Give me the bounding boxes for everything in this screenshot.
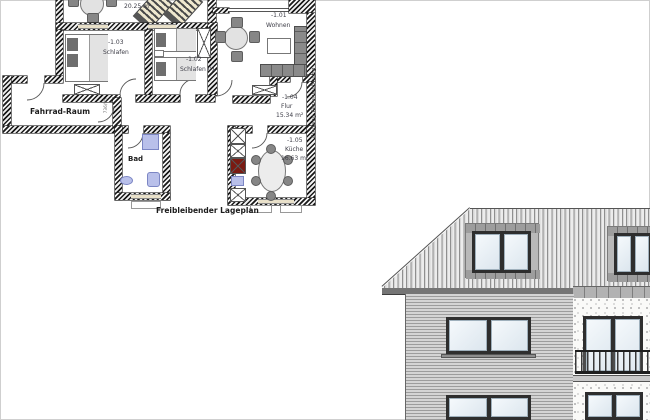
dining-chair <box>231 17 243 28</box>
wall-segment <box>3 76 11 133</box>
plan-caption: Freibleibender Lageplan <box>156 207 259 214</box>
entrance-label: Eingang Ferienwohnung <box>311 63 317 138</box>
wall-segment <box>289 0 315 13</box>
bed-pillow <box>156 62 166 76</box>
terrace-chair <box>106 0 117 7</box>
wall-segment <box>145 30 152 95</box>
terrace-chair <box>68 0 79 7</box>
wall-segment <box>144 126 170 133</box>
wall-segment <box>56 30 63 78</box>
dining-chair <box>231 51 243 62</box>
room-area-label: 16.63 m² <box>281 155 308 162</box>
bed-pillow <box>156 33 166 47</box>
wardrobe <box>74 84 100 95</box>
door-arc <box>27 83 45 101</box>
facade-window <box>446 395 531 420</box>
kitchen-chair <box>266 144 276 154</box>
wall-segment <box>196 95 215 102</box>
room-name-label: Bad <box>128 156 143 163</box>
facade-window <box>585 392 643 420</box>
screenshot-canvas: Terrasse 20.25 m² <box>0 0 650 420</box>
window-pane <box>491 320 529 351</box>
window-pane <box>635 236 649 272</box>
wall-segment <box>136 95 180 102</box>
shaft-cabinet <box>230 144 246 158</box>
floor-plan: Terrasse 20.25 m² <box>0 0 340 230</box>
balcony-railing <box>575 350 650 374</box>
room-area-label: 15.34 m² <box>276 112 303 119</box>
kitchen-chair <box>266 191 276 201</box>
window-pane <box>617 236 631 272</box>
roof-window <box>472 231 531 273</box>
wall-segment <box>233 96 270 103</box>
wall-segment <box>45 76 63 83</box>
door-arc <box>120 79 137 96</box>
shower <box>142 134 159 150</box>
door-arc <box>180 79 196 95</box>
window-sill <box>441 354 536 358</box>
dining-table <box>224 26 248 50</box>
toilet <box>147 172 160 187</box>
roof-ridge-line <box>470 208 650 209</box>
window-opening <box>78 24 108 29</box>
room-id-label: -1.01 <box>271 12 287 19</box>
roof-window <box>614 233 650 275</box>
room-name-label: Wohnen <box>266 22 290 29</box>
kitchen-chair <box>251 155 261 165</box>
wardrobe <box>197 28 211 58</box>
door-size-label: 736/95 <box>103 98 108 113</box>
floor-slab-band <box>573 375 650 382</box>
entrance-step <box>280 205 302 213</box>
kitchen-chair <box>283 176 293 186</box>
room-name-label: Flur <box>281 103 292 110</box>
bed-blanket <box>176 29 196 51</box>
window-pane <box>475 234 500 270</box>
room-name-label: Schlafen 01 <box>180 66 215 73</box>
facade-window <box>446 317 531 354</box>
door-arc <box>216 80 233 97</box>
window-opening <box>258 199 294 204</box>
room-id-label: -1.03 <box>108 39 124 46</box>
window-pane <box>449 320 487 351</box>
kitchen-chair <box>251 176 261 186</box>
room-name-label: Fahrrad-Raum <box>30 108 90 115</box>
wall-segment <box>213 8 229 13</box>
sink <box>120 176 133 185</box>
window-opening <box>131 194 161 199</box>
bed-pillow <box>67 38 78 51</box>
sofa <box>260 64 307 77</box>
sideboard <box>252 85 277 95</box>
shaft-cabinet <box>230 128 246 144</box>
window-pane <box>616 395 640 417</box>
window-pane <box>504 234 529 270</box>
bed-pillow <box>67 54 78 67</box>
window-pane <box>449 398 487 417</box>
building-elevation <box>380 205 650 420</box>
wall-segment <box>115 126 122 200</box>
terrace-chair <box>87 13 99 23</box>
appliance-red <box>230 158 246 174</box>
dining-chair <box>215 31 226 43</box>
room-name-label: Schlafen <box>103 49 129 56</box>
shaft-cabinet <box>230 188 246 202</box>
room-id-label: -1.02 <box>186 56 202 63</box>
wall-segment <box>63 95 120 102</box>
room-id-label: -1.04 <box>282 94 298 101</box>
bed-blanket <box>89 35 108 81</box>
nightstand <box>154 50 164 57</box>
terrace-area-label: 20.25 m² <box>124 3 151 10</box>
room-name-label: Küche <box>285 146 303 153</box>
window-pane <box>588 395 612 417</box>
wall-segment <box>163 133 170 200</box>
room-id-label: -1.05 <box>287 137 303 144</box>
wall-segment <box>3 126 128 133</box>
window-pane <box>491 398 529 417</box>
coffee-table <box>267 38 291 54</box>
dining-chair <box>249 31 260 43</box>
shaft-fixture <box>231 176 244 186</box>
